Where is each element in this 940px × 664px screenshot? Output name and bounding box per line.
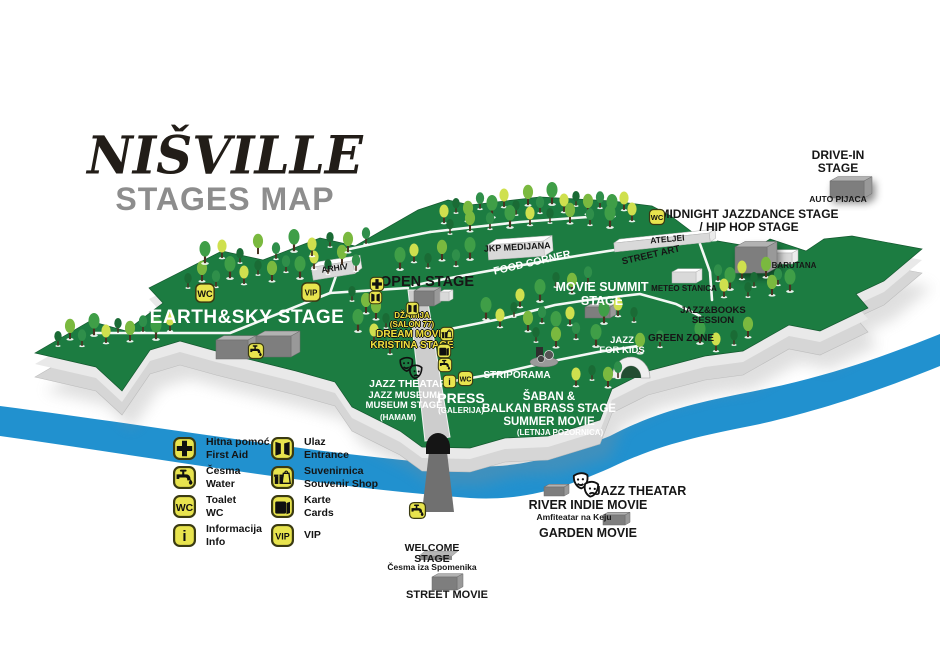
legend-water-icon	[172, 465, 197, 490]
label-barutana: BARUTANA	[772, 262, 817, 271]
legend-souvenir-shop-label-en: Souvenir Shop	[304, 478, 378, 491]
label-barutana-line-0: BARUTANA	[772, 262, 817, 271]
legend-souvenir-shop-icon	[270, 465, 295, 490]
legend-cards-label: KarteCards	[304, 494, 334, 519]
wc-icon: WC	[648, 208, 666, 226]
label-food-corner: FOOD CORNER	[493, 249, 572, 278]
label-garden-movie: GARDEN MOVIE	[539, 527, 637, 541]
label-cesma-iza-spomenika: Česma iza Spomenika	[387, 563, 476, 572]
label-green-zone-line-0: GREEN ZONE	[648, 334, 714, 345]
label-jazz-theatar-riverside-line-0: JAZZ THEATAR	[594, 485, 687, 499]
festival-name: NIŠVILLE	[84, 125, 366, 186]
label-jazz-theatar-riverside: JAZZ THEATAR	[594, 485, 687, 499]
svg-text:i: i	[182, 528, 186, 545]
legend-cards-label-en: Cards	[304, 507, 334, 520]
label-meteo-stanica: METEO STANICA	[651, 285, 717, 294]
label-drive-in-stage: DRIVE-INSTAGE	[812, 149, 865, 175]
svg-text:WC: WC	[197, 289, 213, 299]
label-earth-sky-stage-line-0: EARTH&SKY STAGE	[150, 308, 345, 329]
legend-water-label: ČesmaWater	[206, 465, 240, 490]
tap-icon	[437, 357, 453, 373]
label-arhiv: ARHIV	[321, 262, 348, 275]
map-subtitle: STAGES MAP	[84, 181, 366, 218]
label-galerija: (GALERIJA)	[438, 407, 484, 416]
label-jazz-for-kids-line-1: FOR KIDS	[599, 346, 644, 356]
legend-souvenir-shop-label-sr: Suvenirnica	[304, 465, 378, 478]
label-letnja-pozornica: (LETNJA POZORNICA)	[517, 429, 603, 438]
label-meteo-stanica-line-0: METEO STANICA	[651, 285, 717, 294]
theater-masks-icon	[569, 469, 603, 503]
legend-toilet-label-sr: Toalet	[206, 494, 236, 507]
entrance-icon	[368, 290, 383, 305]
label-open-stage-line-0: OPEN STAGE	[380, 275, 474, 291]
label-ateljei: ATELJEI	[650, 234, 685, 246]
nisville-stages-map: NIŠVILLE STAGES MAP Hitna pomoćFirst Aid…	[0, 0, 940, 664]
label-ateljei-line-0: ATELJEI	[650, 234, 685, 246]
label-street-art-line-0: STREET ART	[621, 244, 681, 267]
label-midnight-jazzdance-stage-line-0: MIDNIGHT JAZZDANCE STAGE	[659, 208, 838, 221]
label-earth-sky-stage: EARTH&SKY STAGE	[150, 308, 345, 329]
map-title: NIŠVILLE STAGES MAP	[84, 126, 366, 218]
label-street-art: STREET ART	[621, 244, 681, 267]
label-press-line-0: PRESS	[437, 391, 484, 406]
legend-information-label-sr: Informacija	[206, 523, 262, 536]
souvenir-icon	[439, 326, 455, 342]
label-striporama: STRIPORAMA	[483, 371, 550, 382]
legend-first-aid-label-en: First Aid	[206, 449, 270, 462]
label-saban-balkan-brass-stage-line-0: ŠABAN &	[482, 391, 616, 403]
svg-text:i: i	[448, 376, 451, 386]
label-movie-summit-stage-line-1: STAGE	[555, 295, 648, 309]
label-jazz-books-session-line-1: SESSION	[680, 316, 745, 326]
label-jazz-for-kids: JAZZFOR KIDS	[599, 336, 644, 357]
label-amfiteatar-na-keju: Amfiteatar na Keju	[536, 513, 611, 522]
label-letnja-pozornica-line-0: (LETNJA POZORNICA)	[517, 429, 603, 438]
legend-water-label-sr: Česma	[206, 465, 240, 478]
legend-entrance-label: UlazEntrance	[304, 436, 349, 461]
label-drive-in-stage-line-1: STAGE	[812, 162, 865, 175]
label-auto-pijaca-line-0: AUTO PIJACA	[809, 195, 866, 204]
svg-text:VIP: VIP	[275, 531, 289, 541]
label-galerija-line-0: (GALERIJA)	[438, 407, 484, 416]
theater-masks-icon	[396, 354, 426, 384]
label-hamam-line-0: (HAMAM)	[380, 414, 416, 423]
svg-text:WC: WC	[651, 213, 664, 222]
legend-vip-label: VIP	[304, 529, 321, 542]
tap-icon	[408, 501, 427, 520]
label-jkp-medijana: JKP MEDIJANA	[484, 241, 551, 254]
label-food-corner-line-0: FOOD CORNER	[493, 249, 572, 278]
legend-cards-icon	[270, 494, 295, 519]
legend-cards-label-sr: Karte	[304, 494, 334, 507]
label-arhiv-line-0: ARHIV	[321, 262, 348, 275]
legend-toilet-icon: WC	[172, 494, 197, 519]
label-saban-balkan-brass-stage: ŠABAN &BALKAN BRASS STAGESUMMER MOVIE	[482, 391, 616, 428]
legend-information-label: InformacijaInfo	[206, 523, 262, 548]
label-midnight-jazzdance-stage: MIDNIGHT JAZZDANCE STAGE/ HIP HOP STAGE	[659, 208, 838, 234]
label-jazz-museum-museum-stage: JAZZ MUSEUM/MUSEUM STAGE	[366, 391, 443, 412]
label-auto-pijaca: AUTO PIJACA	[809, 195, 866, 204]
map-overlay: NIŠVILLE STAGES MAP Hitna pomoćFirst Aid…	[0, 0, 940, 664]
wc-icon: WC	[194, 282, 216, 304]
legend-information-label-en: Info	[206, 536, 262, 549]
legend-toilet-label-en: WC	[206, 507, 236, 520]
entrance-icon	[405, 301, 420, 316]
label-jazz-books-session: JAZZ&BOOKSSESSION	[680, 306, 745, 327]
info-icon: i	[442, 374, 457, 389]
label-jkp-medijana-line-0: JKP MEDIJANA	[484, 241, 551, 254]
legend-toilet-label: ToaletWC	[206, 494, 236, 519]
label-street-movie-line-0: STREET MOVIE	[406, 590, 488, 602]
legend-vip-label-sr: VIP	[304, 529, 321, 542]
label-amfiteatar-na-keju-line-0: Amfiteatar na Keju	[536, 513, 611, 522]
legend-entrance-icon	[270, 436, 295, 461]
legend-information-icon: i	[172, 523, 197, 548]
legend-first-aid-label: Hitna pomoćFirst Aid	[206, 436, 270, 461]
legend-first-aid-label-sr: Hitna pomoć	[206, 436, 270, 449]
legend-entrance-label-sr: Ulaz	[304, 436, 349, 449]
label-green-zone: GREEN ZONE	[648, 334, 714, 345]
label-open-stage: OPEN STAGE	[380, 275, 474, 291]
vip-icon: VIP	[300, 281, 322, 303]
tap-icon	[247, 342, 265, 360]
label-jazz-museum-museum-stage-line-1: MUSEUM STAGE	[366, 401, 443, 411]
wc-icon: WC	[457, 370, 474, 387]
label-saban-balkan-brass-stage-line-1: BALKAN BRASS STAGE	[482, 403, 616, 415]
label-saban-balkan-brass-stage-line-2: SUMMER MOVIE	[482, 416, 616, 428]
label-midnight-jazzdance-stage-line-1: / HIP HOP STAGE	[659, 221, 838, 234]
svg-text:WC: WC	[459, 375, 471, 383]
label-garden-movie-line-0: GARDEN MOVIE	[539, 527, 637, 541]
label-movie-summit-stage: MOVIE SUMMITSTAGE	[555, 281, 648, 308]
label-striporama-line-0: STRIPORAMA	[483, 371, 550, 382]
svg-text:VIP: VIP	[305, 288, 318, 297]
legend-first-aid-icon	[172, 436, 197, 461]
legend-water-label-en: Water	[206, 478, 240, 491]
label-dzamija-salon-77-line-1: (SALON 77)	[390, 321, 434, 330]
svg-text:WC: WC	[176, 503, 194, 514]
legend-vip-icon: VIP	[270, 523, 295, 548]
label-street-movie: STREET MOVIE	[406, 590, 488, 602]
label-drive-in-stage-line-0: DRIVE-IN	[812, 149, 865, 162]
label-cesma-iza-spomenika-line-0: Česma iza Spomenika	[387, 563, 476, 572]
label-press: PRESS	[437, 391, 484, 406]
label-hamam: (HAMAM)	[380, 414, 416, 423]
legend-entrance-label-en: Entrance	[304, 449, 349, 462]
legend-souvenir-shop-label: SuvenirnicaSouvenir Shop	[304, 465, 378, 490]
label-movie-summit-stage-line-0: MOVIE SUMMIT	[555, 281, 648, 295]
